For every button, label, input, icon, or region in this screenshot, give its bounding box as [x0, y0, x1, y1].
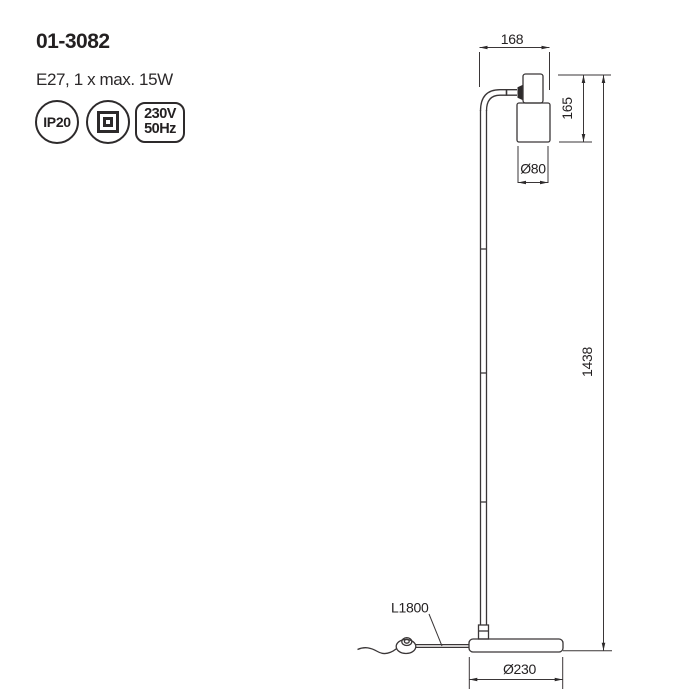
dimension-arm-length: 168 [480, 31, 550, 90]
foot-switch-button-center [404, 639, 409, 643]
dimension-cable-length: L1800 [391, 600, 442, 647]
head-knuckle [518, 85, 524, 100]
technical-drawing: 168 165 Ø80 1438 L1800 Ø230 [0, 0, 700, 700]
pole-ferrule [479, 625, 489, 639]
arm-outer-bend [481, 90, 518, 111]
dim-label-arm-length: 168 [501, 31, 524, 47]
dim-label-base-diameter: Ø230 [503, 661, 537, 677]
lamp-head-shade [517, 103, 550, 142]
dimension-total-height: 1438 [563, 75, 612, 651]
dim-label-head-height: 165 [559, 97, 575, 120]
lamp-base [469, 639, 563, 652]
foot-switch-body [396, 640, 416, 654]
dim-label-total-height: 1438 [579, 347, 595, 377]
arm-inner-bend [487, 95, 518, 111]
dimension-head-diameter: Ø80 [518, 146, 548, 184]
lamp-head-top-cylinder [523, 74, 543, 103]
dim-label-head-diameter: Ø80 [520, 161, 546, 177]
dimension-base-diameter: Ø230 [469, 657, 562, 689]
dim-label-cable-length: L1800 [391, 600, 429, 616]
power-cable [358, 648, 397, 654]
